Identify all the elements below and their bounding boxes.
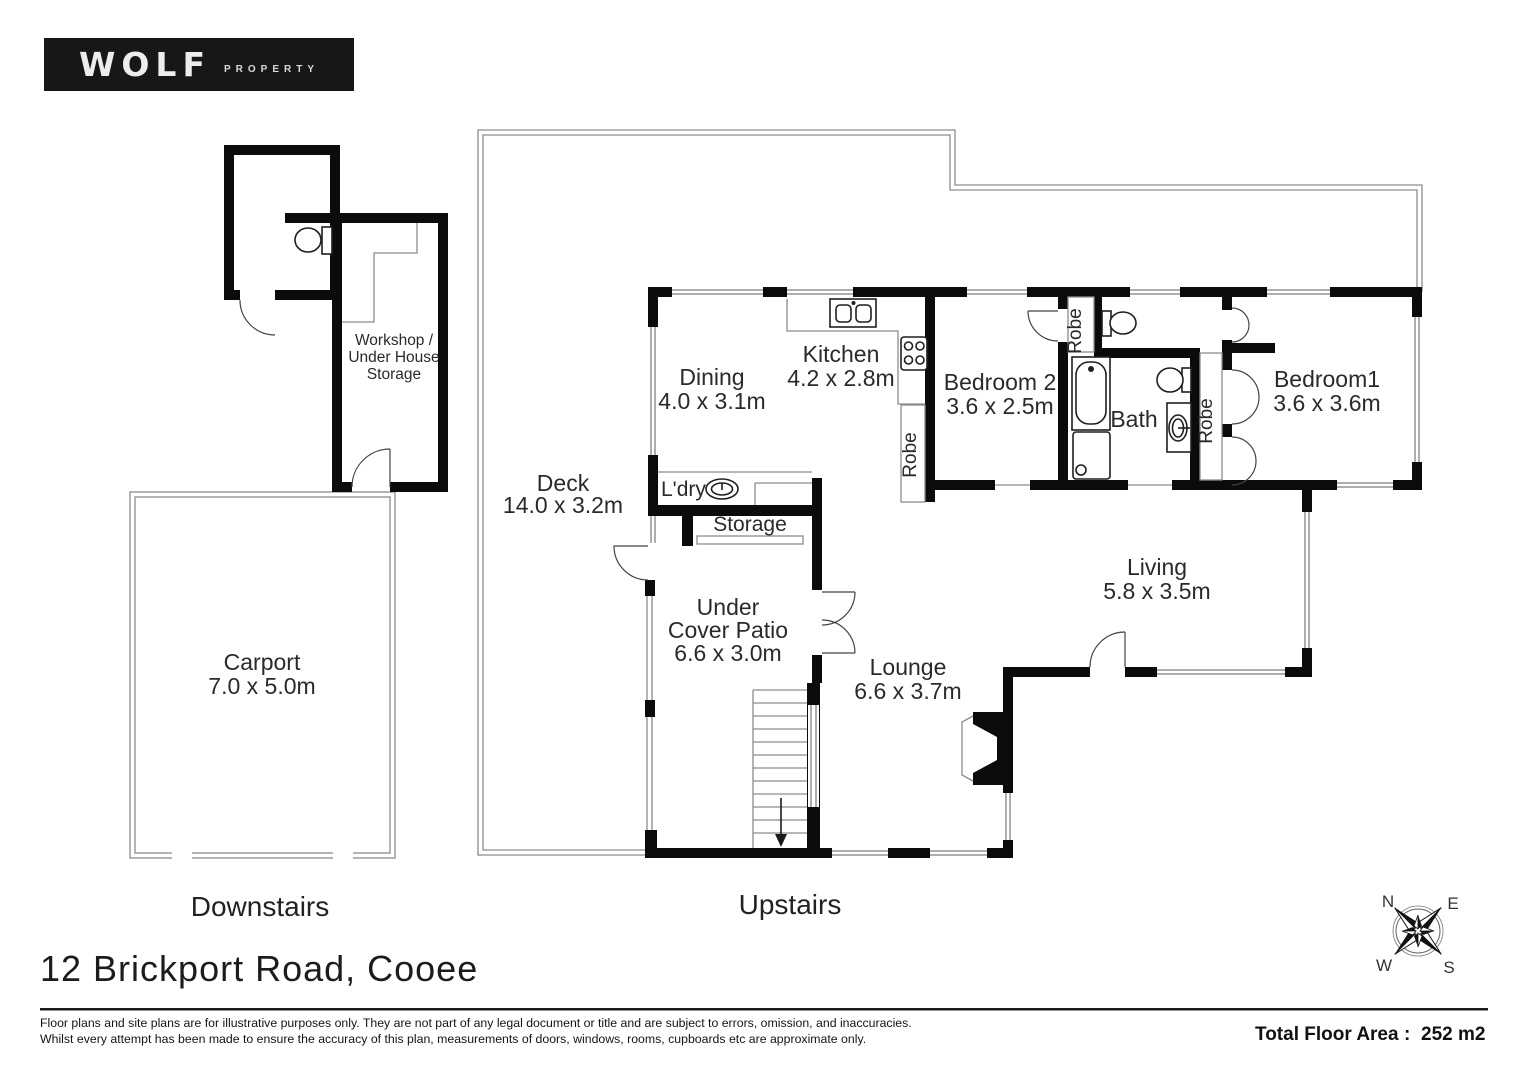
laundry-tub-icon bbox=[706, 479, 738, 499]
wc-toilet-icon bbox=[1102, 311, 1136, 336]
floorplan-drawing: Workshop / Under House Storage Carport 7… bbox=[0, 0, 1528, 1080]
total-floor-area-separator: : bbox=[1404, 1024, 1410, 1045]
bathtub-icon bbox=[1072, 357, 1110, 430]
disclaimer-line2: Whilst every attempt has been made to en… bbox=[40, 1032, 866, 1046]
toilet-icon bbox=[295, 227, 332, 254]
workshop-label-line2: Under House bbox=[348, 349, 439, 366]
workshop-door-arc bbox=[352, 449, 390, 487]
bedroom2-dims: 3.6 x 2.5m bbox=[946, 393, 1053, 419]
vanity-icon bbox=[1167, 403, 1191, 452]
storage-door-track bbox=[697, 536, 803, 544]
underhouse-line bbox=[342, 223, 417, 322]
bedroom1-dims: 3.6 x 3.6m bbox=[1273, 390, 1380, 416]
deck-dims: 14.0 x 3.2m bbox=[503, 492, 623, 518]
total-floor-area-value: 252 m2 bbox=[1421, 1024, 1485, 1045]
compass-w-label: W bbox=[1376, 956, 1392, 975]
fireplace-icon bbox=[962, 712, 1013, 785]
laundry-label: L'dry bbox=[661, 478, 706, 501]
kitchen-label: Kitchen bbox=[803, 341, 880, 367]
disclaimer-line1: Floor plans and site plans are for illus… bbox=[40, 1016, 912, 1030]
storage-label: Storage bbox=[713, 513, 787, 536]
stairs bbox=[753, 690, 807, 848]
kitchen-sink-icon bbox=[830, 299, 876, 327]
bedroom1-robe-label: Robe bbox=[1196, 398, 1217, 443]
stairs-down-arrow bbox=[775, 834, 787, 847]
compass-rose-icon: N E W S bbox=[1371, 884, 1464, 977]
living-label: Living bbox=[1127, 554, 1187, 580]
dining-dims: 4.0 x 3.1m bbox=[658, 388, 765, 414]
downstairs-label: Downstairs bbox=[191, 891, 329, 922]
workshop-label-line1: Workshop / bbox=[355, 332, 434, 349]
small-room-door-arc bbox=[240, 300, 275, 335]
upstairs-plan: Deck 14.0 x 3.2m Dining 4.0 x 3.1m Kitch… bbox=[478, 130, 1422, 920]
kitchen-dims: 4.2 x 2.8m bbox=[787, 365, 894, 391]
dining-label: Dining bbox=[679, 364, 744, 390]
workshop-label-line3: Storage bbox=[367, 366, 421, 383]
living-dims: 5.8 x 3.5m bbox=[1103, 578, 1210, 604]
kitchen-robe-label: Robe bbox=[900, 432, 921, 477]
lounge-label: Lounge bbox=[870, 654, 947, 680]
carport-label: Carport bbox=[224, 649, 301, 675]
stove-icon bbox=[901, 337, 927, 370]
address-title: 12 Brickport Road, Cooee bbox=[40, 948, 478, 989]
total-floor-area-label: Total Floor Area bbox=[1255, 1024, 1399, 1045]
bedroom2-robe-label: Robe bbox=[1065, 308, 1086, 353]
floorplan-page: WOLF PROPERTY bbox=[0, 0, 1528, 1080]
bedroom2-label: Bedroom 2 bbox=[944, 369, 1057, 395]
bath-toilet-icon bbox=[1157, 368, 1191, 392]
compass-s-label: S bbox=[1443, 958, 1454, 977]
shower-icon bbox=[1073, 432, 1110, 479]
lounge-dims: 6.6 x 3.7m bbox=[854, 678, 961, 704]
bath-label: Bath bbox=[1110, 406, 1157, 432]
compass-n-label: N bbox=[1382, 892, 1394, 911]
footer-divider bbox=[40, 1008, 1488, 1011]
patio-label-line3: 6.6 x 3.0m bbox=[674, 640, 781, 666]
upstairs-label: Upstairs bbox=[739, 889, 842, 920]
bedroom1-label: Bedroom1 bbox=[1274, 366, 1380, 392]
carport-dims: 7.0 x 5.0m bbox=[208, 673, 315, 699]
downstairs-plan: Workshop / Under House Storage Carport 7… bbox=[130, 145, 448, 922]
downstairs-walls bbox=[224, 145, 448, 492]
compass-e-label: E bbox=[1447, 894, 1458, 913]
